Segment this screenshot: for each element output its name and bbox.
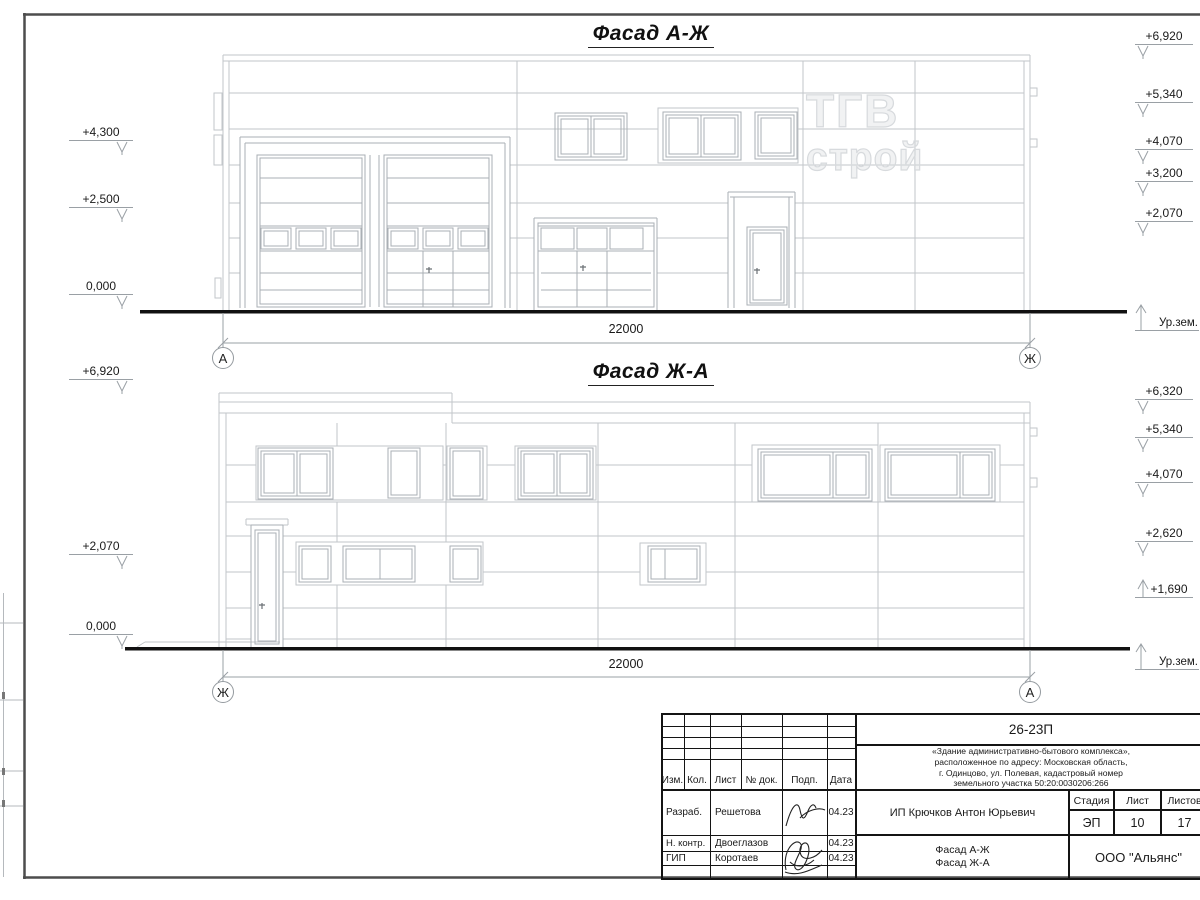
tb-line [661,748,855,749]
tb-stage-label: Стадия [1070,792,1113,809]
tb-col-ndok: № док. [741,771,782,789]
facade2-openings [251,448,995,648]
tb-role: Разраб. [663,790,710,834]
tb-col-podp: Подп. [782,771,827,789]
facade2-title-text: Фасад Ж-А [588,360,714,386]
elevation-value: +6,320 [1145,384,1182,398]
facade1-linework [140,55,1127,348]
elevation-value: +1,690 [1150,582,1187,596]
tb-line [661,737,855,738]
level-arrow-icon [1137,222,1149,236]
tb-line [661,726,855,727]
elevation-value: +2,070 [1145,206,1182,220]
elevation-value: +2,500 [82,192,119,206]
facade2-wall-lines [137,393,1037,647]
elevation-mark: +4,070 [1135,467,1193,483]
elevation-mark: 0,000 [69,619,133,635]
tb-signer-name: Двоеглазов [712,835,782,851]
elevation-value: +4,070 [1145,467,1182,481]
axis-bubble: А [212,347,234,369]
signature-scribble [783,794,827,834]
elevation-value: +5,340 [1145,87,1182,101]
elevation-mark: +6,320 [1135,384,1193,400]
elevation-value: +5,340 [1145,422,1182,436]
tb-date: 04.23 [827,835,855,851]
elevation-mark: +4,070 [1135,134,1193,150]
tb-col-data: Дата [827,771,855,789]
level-up-arrow-icon [1137,578,1149,598]
elevation-value: +2,620 [1145,526,1182,540]
signature-scribble [778,834,826,876]
tb-desc-line: «Здание административно-бытового комплек… [932,746,1130,757]
tb-doc-number: 26-23П [855,715,1200,744]
tb-sheet-label: Лист [1115,792,1160,809]
watermark-line1: ТГВ [806,88,923,134]
tb-role: Н. контр. [663,835,710,851]
ground-level-label: Ур.зем. [1135,643,1199,670]
elevation-mark: +5,340 [1135,87,1193,103]
elevation-mark: +3,200 [1135,166,1193,182]
elevation-value: +6,920 [82,364,119,378]
margin-text-stub [2,768,5,775]
elevation-value: +3,200 [1145,166,1182,180]
door-handle [259,603,265,609]
level-arrow-icon [1137,182,1149,196]
elevation-value: 0,000 [86,619,116,633]
elevation-value: +4,300 [82,125,119,139]
level-arrow-icon [1137,438,1149,452]
level-arrow-icon [1137,400,1149,414]
tb-project-description: «Здание административно-бытового комплек… [855,746,1200,789]
tb-role: ГИП [663,851,710,865]
tb-desc-line: земельного участка 50:20:0030206:266 [953,778,1108,789]
facade1-dimension-text: 22000 [566,322,686,336]
axis-bubble: Ж [212,681,234,703]
facade2-linework [125,393,1130,682]
tb-desc-line: расположенное по адресу: Московская обла… [934,757,1127,768]
level-arrow-icon [1137,45,1149,59]
tb-sheets-value: 17 [1162,811,1200,834]
elevation-mark: +1,690 [1135,582,1193,598]
level-arrow-icon [116,295,128,309]
elevation-mark: +5,340 [1135,422,1193,438]
tb-company: ООО "Альянс" [1070,836,1200,878]
tb-drawing-names: Фасад А-Ж Фасад Ж-А [857,836,1068,878]
ground-arrow-icon [1135,643,1147,670]
elevation-mark: +2,070 [69,539,133,555]
facade1-title: Фасад А-Ж [541,22,761,46]
axis-bubble: А [1019,681,1041,703]
facade2-ground-line [125,647,1130,651]
facade2-title: Фасад Ж-А [541,360,761,384]
axis-bubble: Ж [1019,347,1041,369]
elevation-mark: +6,920 [69,364,133,380]
elevation-value: +4,070 [1145,134,1182,148]
tb-col-list: Лист [710,771,741,789]
ground-level-label: Ур.зем. [1135,304,1199,331]
tb-desc-line: г. Одинцово, ул. Полевая, кадастровый но… [939,768,1123,779]
tb-col-kol: Кол. [684,771,710,789]
margin-text-stub [2,692,5,699]
tb-sheets-label: Листов [1162,792,1200,809]
tb-signer-name: Решетова [712,790,782,834]
level-arrow-icon [1137,483,1149,497]
elevation-mark: +2,500 [69,192,133,208]
level-arrow-icon [116,208,128,222]
facade1-title-text: Фасад А-Ж [588,22,714,48]
level-arrow-icon [1137,150,1149,164]
tb-date: 04.23 [827,790,855,834]
level-arrow-icon [116,635,128,649]
tb-col-izm: Изм. [661,771,684,789]
tb-border [661,878,1200,880]
elevation-mark: +2,620 [1135,526,1193,542]
elevation-mark: +4,300 [69,125,133,141]
logo-watermark: ТГВ строй [806,88,923,177]
tb-sheet-value: 10 [1115,811,1160,834]
tb-stage-value: ЭП [1070,811,1113,834]
tb-line [710,713,711,878]
level-arrow-icon [1137,103,1149,117]
watermark-line2: строй [806,138,923,177]
tb-date: 04.23 [827,851,855,865]
tb-signer-name: Коротаев [712,851,782,865]
level-arrow-icon [1137,542,1149,556]
ground-arrow-icon [1135,304,1147,331]
elevation-mark: +6,920 [1135,29,1193,45]
tb-client: ИП Крючков Антон Юрьевич [857,792,1068,834]
title-block: Изм. Кол. Лист № док. Подп. Дата Разраб.… [661,713,1200,880]
level-arrow-icon [116,555,128,569]
elevation-mark: 0,000 [69,279,133,295]
level-arrow-icon [116,141,128,155]
tb-drawing-name-line: Фасад А-Ж [935,844,989,858]
ground-label-text: Ур.зем. [1159,317,1198,329]
elevation-value: +6,920 [1145,29,1182,43]
elevation-value: +2,070 [82,539,119,553]
facade1-openings [240,112,797,310]
level-arrow-icon [116,380,128,394]
elevation-mark: +2,070 [1135,206,1193,222]
tb-line [661,759,855,760]
facade1-ground-line [140,310,1127,314]
facade2-dimension-text: 22000 [566,657,686,671]
margin-text-stub [2,800,5,807]
tb-drawing-name-line: Фасад Ж-А [935,857,989,871]
margin-stub-table [0,593,23,877]
drawing-sheet: Фасад А-Ж Фасад Ж-А ТГВ строй +4,300 +2,… [0,0,1200,900]
ground-label-text: Ур.зем. [1159,656,1198,668]
elevation-value: 0,000 [86,279,116,293]
